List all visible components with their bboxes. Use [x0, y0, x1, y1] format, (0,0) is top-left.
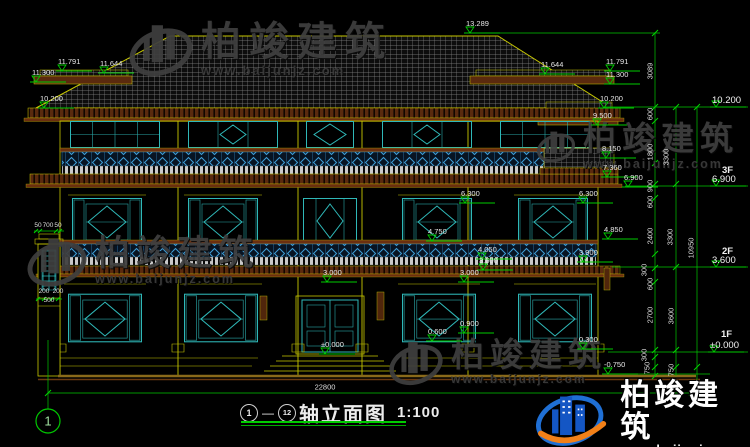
site-logo-url: www.baijunjz.com — [620, 443, 750, 447]
elevation-marker-triangle — [604, 78, 640, 84]
elevation-marker-triangle — [601, 171, 637, 177]
elevation-marker-triangle — [600, 152, 636, 158]
elevation-marker-triangle — [30, 76, 66, 82]
title-dash: — — [262, 406, 274, 420]
elevation-marker-triangle — [464, 27, 500, 33]
elevation-marker-triangle — [602, 368, 638, 374]
elevation-marker-triangle — [458, 276, 494, 282]
title-underline — [241, 421, 406, 423]
title-axis-start-circle: 1 — [240, 404, 258, 422]
elevation-marker-triangle — [710, 261, 746, 267]
elevation-marker-triangle — [458, 327, 494, 333]
elevation-marker-triangle — [459, 197, 495, 203]
elevation-marker-triangle — [426, 335, 462, 341]
elevation-marker-triangle — [321, 276, 357, 282]
elevation-marker-triangle — [319, 348, 355, 354]
cad-elevation-screenshot: 柏竣建筑 www.baijunjz.com 柏竣建筑 www.baijunjz.… — [0, 0, 750, 447]
elevation-marker-triangle — [426, 235, 462, 241]
elevation-marker-triangle — [591, 119, 627, 125]
site-logo-brand: 柏竣建筑 — [620, 380, 750, 443]
elevation-marker-triangle — [577, 197, 613, 203]
site-logo-icon — [536, 386, 616, 447]
elevation-marker-triangle — [56, 65, 92, 71]
elevation-marker-triangle — [577, 343, 613, 349]
elevation-marker-triangle — [477, 264, 513, 270]
elevation-marker-triangle — [577, 256, 613, 262]
site-logo: 柏竣建筑 www.baijunjz.com — [536, 380, 750, 447]
title-axis-end-circle: 12 — [278, 404, 296, 422]
elevation-marker-triangle — [476, 253, 512, 259]
elevation-marker-triangle — [708, 346, 744, 352]
title-scale: 1:100 — [397, 404, 440, 421]
elevation-marker-triangle — [602, 233, 638, 239]
elevation-marker-triangle — [622, 181, 658, 187]
axis-bubble-1: 1 — [44, 414, 51, 429]
elevation-marker-triangle — [710, 180, 746, 186]
elevation-marker-triangle — [38, 102, 74, 108]
elevation-marker-triangle — [604, 65, 640, 71]
elevation-marker-triangle — [98, 67, 134, 73]
elevation-marker-triangle — [539, 68, 575, 74]
elevation-marker-triangle — [598, 102, 634, 108]
elevation-marker-triangle — [710, 101, 746, 107]
title-underline-2 — [241, 425, 406, 426]
